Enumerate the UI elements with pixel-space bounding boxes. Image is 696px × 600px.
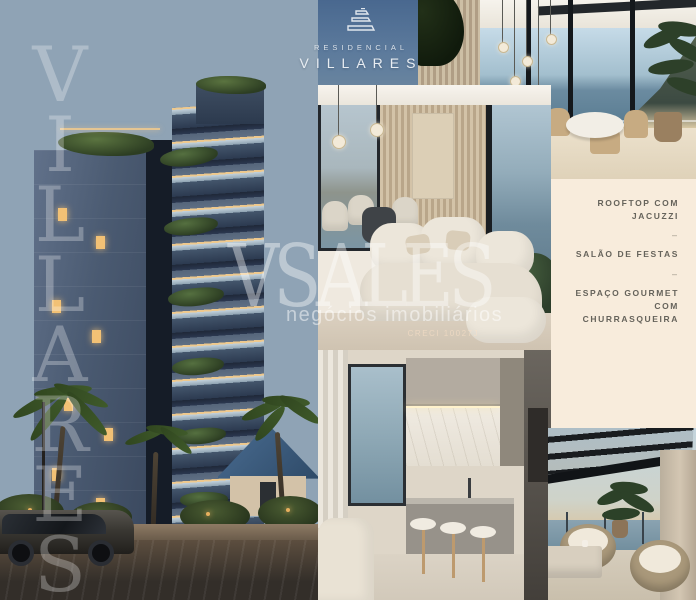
curtains xyxy=(318,350,348,528)
faucet xyxy=(468,478,471,500)
marble-backsplash xyxy=(406,406,500,466)
amenities-panel: ROOFTOP COM JACUZZI – SALÃO DE FESTAS – … xyxy=(551,179,696,428)
kitchen-window xyxy=(348,364,406,506)
amenity-separator: – xyxy=(672,270,677,279)
under-cabinet-led xyxy=(406,406,500,408)
table-decor xyxy=(582,540,588,547)
railing-post xyxy=(642,512,644,544)
coffee-table xyxy=(548,546,602,578)
residencial-villares-logo: RESIDENCIAL VILLARES xyxy=(288,8,434,71)
villares-building-icon xyxy=(342,8,380,34)
upper-cabinets xyxy=(406,358,500,406)
built-in-fridge xyxy=(528,408,548,482)
amenity-item: ROOFTOP COM JACUZZI xyxy=(561,197,679,223)
rooftop-lounge-photo xyxy=(548,428,696,600)
chair-cushion xyxy=(639,545,681,573)
amenity-item: ESPAÇO GOURMET COM CHURRASQUEIRA xyxy=(561,287,679,327)
shelf-niche xyxy=(500,358,524,466)
villares-marketing-poster: ROOFTOP COM JACUZZI – SALÃO DE FESTAS – … xyxy=(0,0,696,600)
logo-residencial-text: RESIDENCIAL xyxy=(288,43,434,52)
corner-sofa xyxy=(318,518,374,600)
vsales-watermark: VSALES negócios imobiliários CRECI 10027… xyxy=(228,234,549,338)
living-ceiling xyxy=(318,85,551,105)
tower-core xyxy=(146,140,172,542)
dining-chair xyxy=(624,110,648,138)
kitchen-photo xyxy=(318,350,551,600)
wall-art-panel xyxy=(412,113,454,199)
vsales-creci-license: CRECI 10027J xyxy=(286,329,479,338)
logo-villares-text: VILLARES xyxy=(288,55,434,71)
vertical-villares-watermark: V I L L A R E S xyxy=(14,40,106,600)
round-dining-table xyxy=(566,112,624,138)
amenity-item: SALÃO DE FESTAS xyxy=(576,248,679,261)
amenity-separator: – xyxy=(672,231,677,240)
watermark-letter: S xyxy=(14,530,106,600)
vsales-brand-text: VSALES xyxy=(228,234,491,320)
